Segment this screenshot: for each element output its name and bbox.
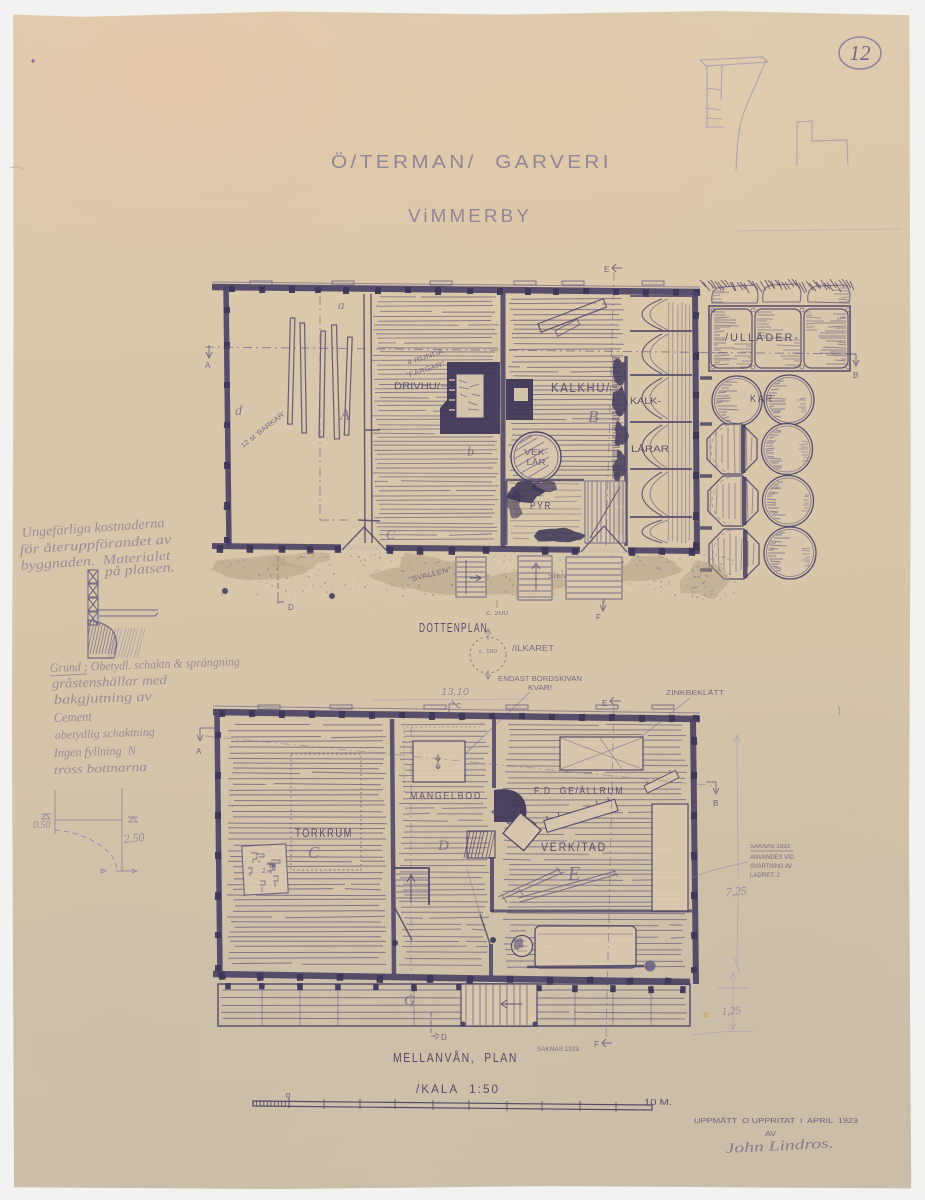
svg-text:MANGELBOD: MANGELBOD xyxy=(410,790,482,802)
svg-text:D: D xyxy=(437,838,449,854)
svg-text:A: A xyxy=(205,361,211,370)
svg-text:0.50: 0.50 xyxy=(33,820,51,831)
svg-text:c. 200: c. 200 xyxy=(486,611,509,617)
svg-text:7,25: 7,25 xyxy=(725,884,747,899)
svg-text:E: E xyxy=(602,699,607,708)
svg-text:C: C xyxy=(308,843,320,862)
svg-text:c. 100: c. 100 xyxy=(479,649,497,655)
svg-text:10 M.: 10 M. xyxy=(644,1097,672,1107)
svg-text:STEN: STEN xyxy=(548,574,566,580)
svg-text:TORKRUM: TORKRUM xyxy=(295,826,353,840)
svg-text:/ULLÄDER-: /ULLÄDER- xyxy=(725,332,800,344)
svg-text:SAKNAS 1923: SAKNAS 1923 xyxy=(537,1046,579,1053)
svg-text:KALKHU/: KALKHU/ xyxy=(551,380,611,395)
svg-text:2.50: 2.50 xyxy=(123,830,145,846)
svg-text:A: A xyxy=(339,407,350,424)
svg-text:obetydlig schaktning: obetydlig schaktning xyxy=(55,725,155,742)
svg-text:0: 0 xyxy=(286,1091,290,1100)
svg-text:John Lindros.: John Lindros. xyxy=(725,1136,834,1157)
svg-text:E: E xyxy=(604,265,609,274)
svg-text:F.D GE/ÄLLRUM: F.D GE/ÄLLRUM xyxy=(534,785,624,797)
svg-text:ANVÄNDES VID: ANVÄNDES VID xyxy=(750,854,795,861)
svg-text:LÅR: LÅR xyxy=(527,457,546,467)
svg-text:1,25: 1,25 xyxy=(721,1005,742,1018)
svg-text:VEK-: VEK- xyxy=(524,447,548,457)
svg-text:SVÄRTNING AV: SVÄRTNING AV xyxy=(750,863,792,870)
svg-text:/KALA 1:50: /KALA 1:50 xyxy=(416,1084,500,1096)
svg-text:D: D xyxy=(441,1033,447,1042)
svg-text:Ingen fyllning N: Ingen fyllning N xyxy=(53,743,137,760)
svg-text:PYR: PYR xyxy=(530,500,552,512)
svg-text:C: C xyxy=(456,701,462,710)
svg-text:MELLANVÅN, PLAN: MELLANVÅN, PLAN xyxy=(393,1050,518,1065)
svg-text:C: C xyxy=(386,527,395,542)
svg-text:UPPMÄTT O UPPRITAT I APRIL: UPPMÄTT O UPPRITAT I APRIL 1923 xyxy=(694,1116,858,1125)
svg-text:KAR: KAR xyxy=(750,394,774,405)
svg-text:/ILKARET: /ILKARET xyxy=(512,643,554,653)
svg-text:B: B xyxy=(853,371,858,380)
svg-text:F: F xyxy=(596,613,601,622)
svg-text:13,10: 13,10 xyxy=(441,687,469,698)
svg-text:D: D xyxy=(288,603,294,612)
svg-text:tross bottnarna: tross bottnarna xyxy=(54,760,147,777)
svg-text:KALK-: KALK- xyxy=(630,396,661,406)
svg-text:LÄDRET. 2: LÄDRET. 2 xyxy=(750,872,781,879)
svg-text:G: G xyxy=(404,993,415,1009)
svg-text:SAKNAS 1933: SAKNAS 1933 xyxy=(750,844,791,850)
svg-text:Ö/TERMAN/ GARVERI: Ö/TERMAN/ GARVERI xyxy=(331,152,612,172)
svg-text:12: 12 xyxy=(850,41,872,65)
svg-text:d: d xyxy=(235,404,243,419)
svg-text:DOTTENPLAN: DOTTENPLAN xyxy=(419,620,488,635)
svg-text:ViMMERBY: ViMMERBY xyxy=(408,206,532,226)
svg-text:A: A xyxy=(196,747,202,756)
svg-text:B: B xyxy=(713,799,718,808)
svg-text:F: F xyxy=(594,1040,599,1049)
svg-text:bakgjutning av: bakgjutning av xyxy=(54,689,152,707)
svg-text:KVAR!: KVAR! xyxy=(528,685,552,692)
svg-text:AV: AV xyxy=(765,1131,776,1138)
svg-text:ENDAST BORDSKIVAN: ENDAST BORDSKIVAN xyxy=(498,676,582,683)
svg-text:ZINKBEKLÄTT: ZINKBEKLÄTT xyxy=(666,689,725,697)
svg-text:B: B xyxy=(588,407,599,426)
svg-text:Cement: Cement xyxy=(54,709,94,725)
svg-text:a: a xyxy=(338,297,345,312)
svg-text:2: 2 xyxy=(262,868,266,875)
svg-text:b: b xyxy=(467,445,474,460)
svg-text:VERK/TAD: VERK/TAD xyxy=(541,842,607,854)
svg-text:12 st 'BARKAR': 12 st 'BARKAR' xyxy=(240,411,287,450)
svg-text:DRIVHU/: DRIVHU/ xyxy=(394,381,440,392)
